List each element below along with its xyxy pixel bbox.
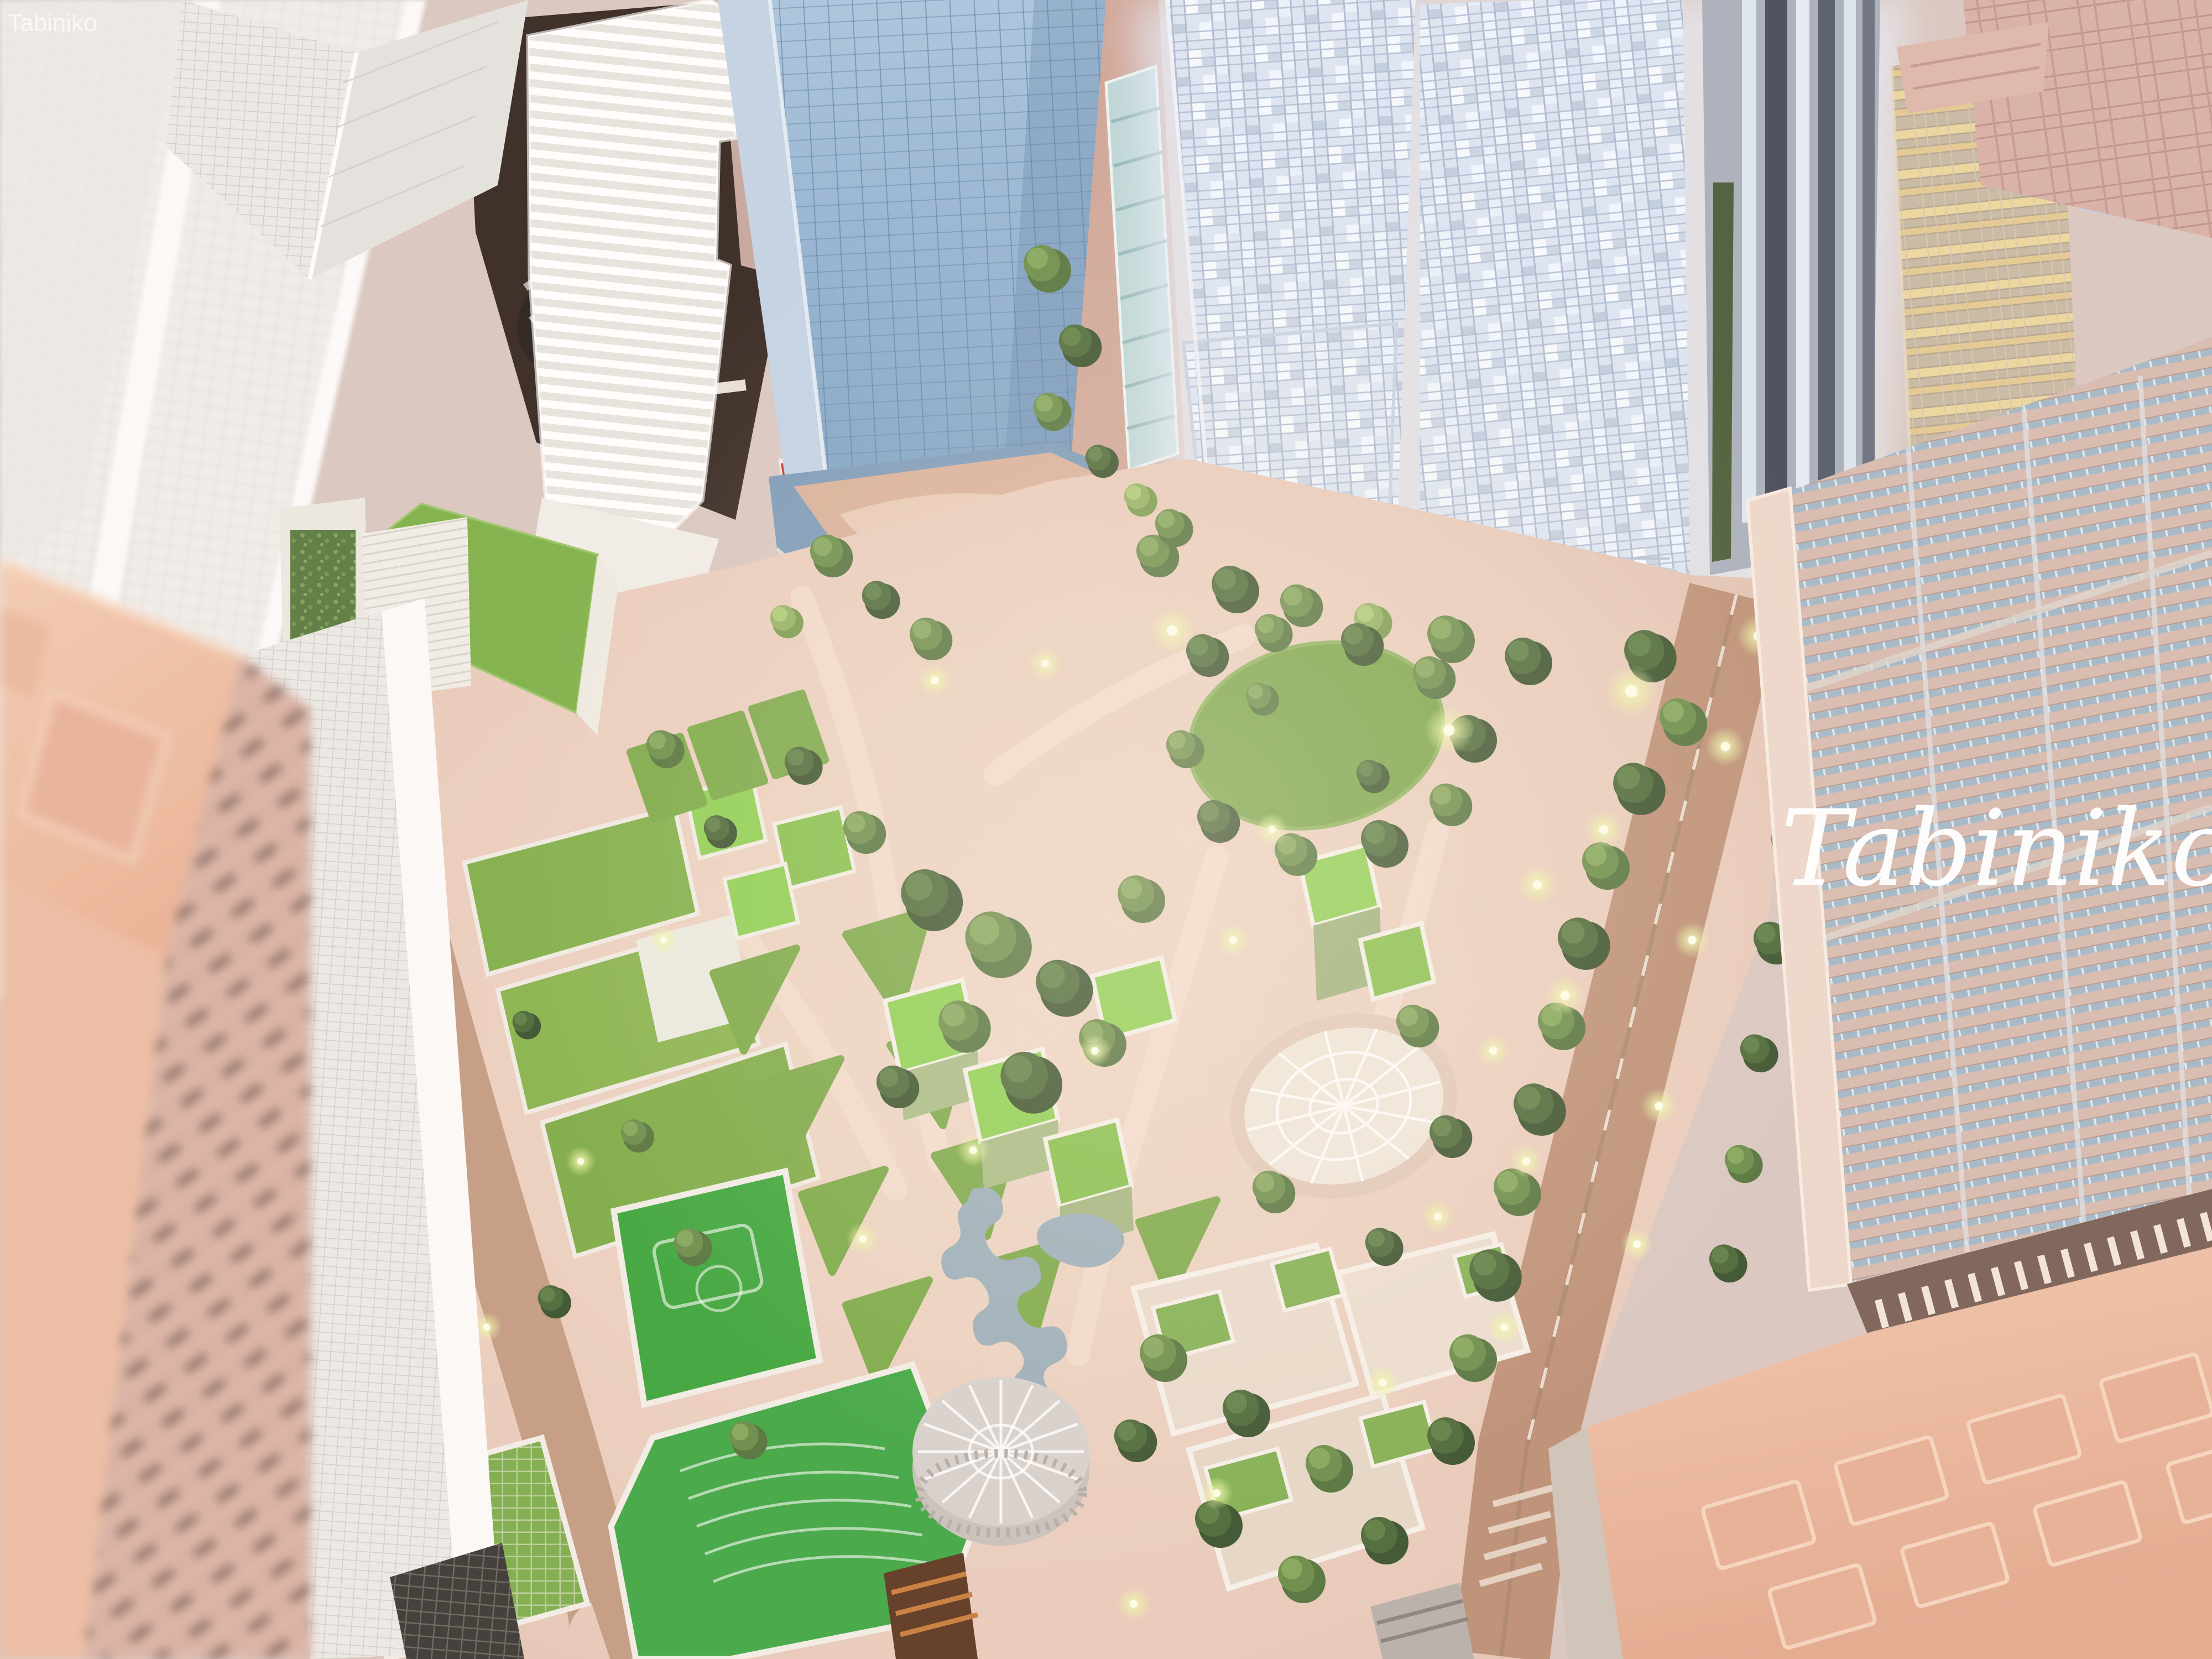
watermark-corner: Tabiniko: [8, 9, 97, 36]
scale-model-photo: Tabiniko Tabiniko: [0, 0, 2212, 1659]
model-photo-canvas: Tabiniko Tabiniko: [0, 0, 2212, 1659]
watermark-script: Tabiniko: [1781, 787, 2212, 910]
